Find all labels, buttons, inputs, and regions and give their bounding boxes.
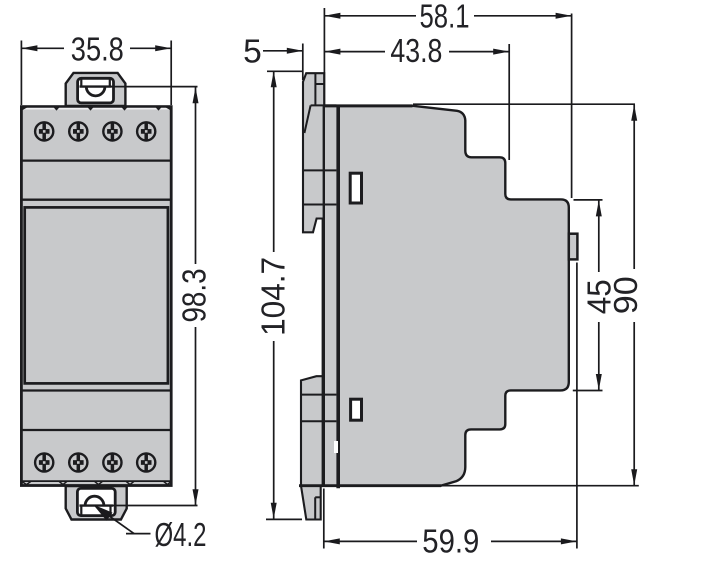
svg-text:Ø4.2: Ø4.2 xyxy=(155,517,207,554)
svg-text:98.3: 98.3 xyxy=(176,269,213,323)
svg-text:58.1: 58.1 xyxy=(420,0,470,36)
svg-text:43.8: 43.8 xyxy=(390,33,442,70)
svg-text:104.7: 104.7 xyxy=(255,257,292,336)
svg-text:5: 5 xyxy=(243,33,262,70)
svg-text:90: 90 xyxy=(608,276,645,314)
svg-text:35.8: 35.8 xyxy=(71,32,124,69)
svg-text:59.9: 59.9 xyxy=(422,524,479,561)
